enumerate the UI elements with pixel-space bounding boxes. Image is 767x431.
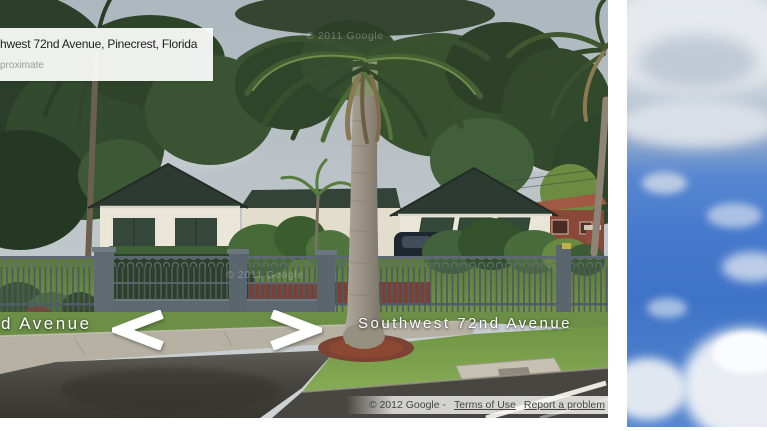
terms-of-use-link[interactable]: Terms of Use xyxy=(454,399,516,411)
gate-post xyxy=(317,252,335,318)
fence-pillar xyxy=(556,245,571,315)
address-title: hwest 72nd Avenue, Pinecrest, Florida xyxy=(0,36,205,52)
street-label-center: Southwest 72nd Avenue xyxy=(358,315,572,332)
cloud xyxy=(627,100,767,148)
gate-post xyxy=(94,249,114,319)
street-view-panel[interactable]: © 2011 Google © 2011 Google hwest 72nd A… xyxy=(0,0,608,418)
street-nav-arrow-left-icon[interactable] xyxy=(112,310,168,350)
cloud xyxy=(642,172,687,194)
report-a-problem-link[interactable]: Report a problem xyxy=(524,399,605,411)
cloud xyxy=(637,35,757,90)
gate-post xyxy=(229,251,247,319)
address-infowindow: hwest 72nd Avenue, Pinecrest, Florida pr… xyxy=(0,28,213,81)
street-nav-arrow-right-icon[interactable] xyxy=(266,310,322,350)
cloud xyxy=(627,358,687,420)
sky-photo-panel xyxy=(627,0,767,427)
fence-sign xyxy=(562,243,571,249)
cloud xyxy=(722,252,767,282)
tile-watermark: © 2011 Google xyxy=(306,30,384,42)
tile-watermark: © 2011 Google xyxy=(226,269,304,281)
cloud xyxy=(647,298,687,318)
attribution-bar: © 2012 Google - Terms of Use Report a pr… xyxy=(346,396,608,414)
cloud xyxy=(707,203,762,228)
street-label-left: d Avenue xyxy=(1,314,92,334)
copyright-text: © 2012 Google - xyxy=(369,399,446,411)
page: © 2011 Google © 2011 Google hwest 72nd A… xyxy=(0,0,767,431)
address-approximate-note: proximate xyxy=(0,60,205,72)
